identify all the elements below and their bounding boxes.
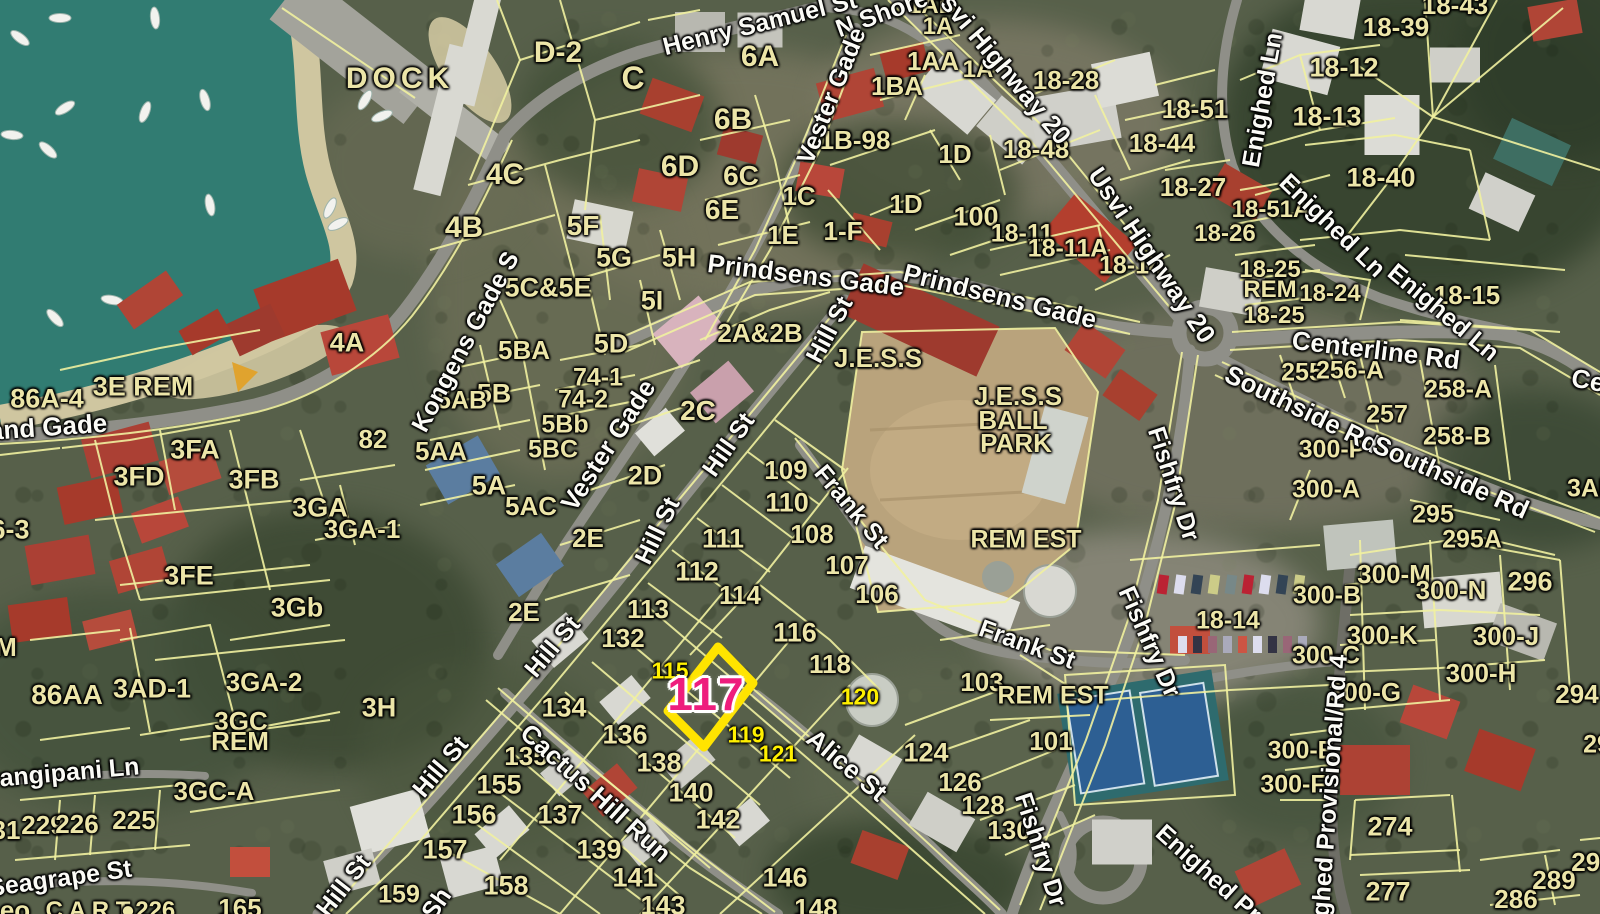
parcel-label: 1BA	[871, 73, 923, 99]
parcel-label: 5G	[596, 245, 632, 272]
parcel-label: 18-43	[1422, 0, 1489, 18]
parcel-label: REM	[1243, 278, 1296, 302]
street-label: Fishfry Dr	[1114, 583, 1185, 701]
parcel-label: 18-51	[1162, 96, 1229, 122]
parcel-label: 3GA-1	[324, 516, 401, 542]
parcel-label: 18-44	[1129, 130, 1196, 156]
parcel-label: 2A&2B	[717, 320, 802, 346]
parcel-label: 18-24	[1299, 282, 1360, 306]
parcel-label: 18-39	[1363, 14, 1430, 40]
parcel-label: 118	[809, 651, 851, 677]
parcel-label: 165	[218, 895, 261, 914]
street-label: Seagrape St	[0, 857, 133, 902]
parcel-label: M	[0, 634, 17, 660]
parcel-label: 5F	[567, 212, 600, 240]
parcel-label: 6B	[714, 105, 752, 135]
parcel-label: 18-13	[1292, 104, 1361, 131]
parcel-label: 5Bb	[541, 413, 588, 438]
parcel-label: 159	[378, 883, 420, 908]
parcel-label: 3FA	[170, 437, 220, 464]
parcel-label: 112	[675, 559, 719, 586]
parcel-label: 5AC	[505, 493, 557, 519]
parcel-label: 18-12	[1309, 55, 1378, 82]
parcel-label: 3AD-1	[113, 676, 191, 703]
map-viewport[interactable]: D-2C6A6B6D6C6E4C4B5F5G5H5C&5E5I1AB1A1AA1…	[0, 0, 1600, 914]
parcel-label: 6A	[741, 42, 779, 72]
parcel-label: 158	[483, 873, 528, 900]
parcel-label: 6-3	[0, 517, 30, 544]
street-label: Frank St	[976, 616, 1079, 674]
parcel-label: 6D	[661, 152, 699, 182]
parcel-label: 225	[112, 807, 155, 833]
parcel-label: 1C	[782, 183, 815, 209]
street-label: Centerline Rd	[1570, 365, 1600, 420]
parcel-label: 114	[719, 582, 761, 608]
parcel-label: REM	[211, 728, 269, 754]
parcel-label: 4C	[486, 160, 524, 190]
parcel-label: 5I	[641, 288, 664, 315]
place-label: DOCK	[346, 64, 454, 94]
selected-parcel-label[interactable]: 117	[667, 671, 744, 717]
parcel-label: 2E	[508, 599, 540, 625]
parcel-label: 155	[476, 772, 521, 799]
parcel-label: 295	[1412, 503, 1454, 528]
street-label: Prindsens Gade	[706, 250, 906, 300]
parcel-label: 226	[55, 811, 98, 837]
parcel-label: 107	[825, 552, 868, 578]
street-label: Hill St	[409, 732, 474, 802]
parcel-label: 1D	[938, 141, 971, 167]
parcel-label: 31	[0, 817, 20, 843]
parcel-label: 5AA	[415, 438, 467, 464]
parcel-label: C	[621, 62, 644, 94]
parcel-label: 286	[1494, 886, 1537, 912]
parcel-label: 141	[612, 865, 657, 892]
parcel-label: 294	[1555, 681, 1598, 707]
parcel-label: 2C	[680, 397, 716, 425]
parcel-label: 116	[773, 620, 817, 647]
place-label: REM EST	[997, 684, 1108, 709]
parcel-label: 258-B	[1423, 425, 1491, 450]
parcel-label: 18-11A	[1028, 237, 1109, 262]
parcel-label: 3Gb	[271, 595, 324, 622]
parcel-label: 300-H	[1446, 660, 1517, 686]
parcel-label: 18-14	[1196, 609, 1260, 634]
parcel-label: 4B	[445, 213, 483, 243]
highlighted-parcel-label: 120	[841, 686, 879, 709]
parcel-label: 5D	[594, 331, 629, 358]
street-label: Prindsens Gade	[901, 259, 1099, 332]
parcel-label: 257	[1366, 403, 1408, 428]
parcel-label: C A R T	[46, 899, 131, 914]
parcel-label: 4A	[330, 330, 365, 357]
parcel-label: 3FE	[164, 563, 214, 590]
parcel-label: 137	[537, 802, 582, 829]
parcel-label: 295A	[1442, 528, 1502, 553]
parcel-label: 3E REM	[93, 374, 194, 401]
parcel-label: 82	[359, 426, 388, 452]
map-labels-layer: D-2C6A6B6D6C6E4C4B5F5G5H5C&5E5I1AB1A1AA1…	[0, 0, 1600, 914]
parcel-label: 86AA	[31, 681, 103, 709]
street-label: Enighed Ln	[1239, 31, 1287, 169]
parcel-label: 5H	[662, 245, 697, 272]
parcel-label: 289	[1532, 867, 1575, 893]
parcel-label: 138	[636, 750, 681, 777]
place-label: PARK	[980, 430, 1052, 456]
parcel-label: 300-N	[1416, 577, 1487, 603]
parcel-label: 1-F	[824, 218, 863, 244]
parcel-label: 5C&5E	[504, 275, 591, 302]
parcel-label: 18-27	[1160, 174, 1227, 200]
parcel-label: ●226	[121, 899, 176, 914]
street-label: Fishfry Dr	[1143, 424, 1203, 544]
parcel-label: 140	[668, 780, 713, 807]
parcel-label: 300-A	[1292, 478, 1360, 503]
parcel-label: 148	[794, 895, 837, 914]
parcel-label: 1E	[767, 222, 799, 248]
street-label: Strand Gade	[0, 410, 108, 447]
parcel-label: 142	[695, 807, 740, 834]
parcel-label: 290	[1571, 849, 1600, 875]
parcel-label: 156	[451, 802, 496, 829]
parcel-label: 3FD	[113, 464, 164, 491]
parcel-label: 296	[1507, 569, 1552, 596]
place-label: J.E.S.S	[834, 345, 922, 371]
parcel-label: 29	[1583, 733, 1600, 758]
parcel-label: 5BC	[528, 438, 578, 463]
parcel-label: 106	[855, 581, 898, 607]
parcel-label: 124	[903, 740, 948, 767]
parcel-label: 5BA	[498, 337, 550, 363]
street-label: Frangipani Ln	[0, 754, 140, 793]
parcel-label: 86A-4	[10, 386, 84, 413]
parcel-label: 2D	[628, 463, 663, 490]
parcel-label: 258-A	[1424, 378, 1492, 403]
street-label: Alice St	[802, 724, 892, 805]
parcel-label: 300-B	[1293, 584, 1361, 609]
parcel-label: 6E	[705, 196, 739, 224]
parcel-label: 113	[627, 596, 669, 622]
parcel-label: 6C	[723, 162, 759, 190]
parcel-label: 3FB	[228, 467, 279, 494]
parcel-label: 157	[422, 837, 467, 864]
parcel-label: 3H	[362, 695, 397, 722]
parcel-label: 300-J	[1473, 623, 1540, 649]
street-label: Hill St	[312, 850, 375, 914]
parcel-label: 74-2	[558, 388, 608, 413]
parcel-label: 139	[576, 837, 621, 864]
parcel-label: 3GC-A	[174, 778, 255, 804]
parcel-label: 277	[1365, 879, 1410, 906]
street-label: Fishfry Dr	[1010, 790, 1070, 910]
parcel-label: 3AB	[1567, 477, 1600, 502]
parcel-label: 110	[765, 490, 809, 517]
parcel-label: 111	[702, 526, 744, 553]
parcel-label: 3GA-2	[226, 669, 303, 695]
parcel-label: 146	[762, 865, 807, 892]
parcel-label: 1D	[889, 191, 922, 217]
parcel-label: 101	[1029, 728, 1072, 754]
parcel-label: 108	[790, 521, 833, 547]
parcel-label: 2E	[572, 525, 604, 551]
parcel-label: 18-40	[1346, 165, 1415, 192]
parcel-label: 134	[541, 695, 586, 722]
place-label: REM EST	[970, 528, 1081, 553]
parcel-label: 143	[640, 893, 685, 914]
parcel-label: 274	[1367, 814, 1412, 841]
parcel-label: 109	[764, 457, 807, 483]
street-label: Enighed Provisio	[1151, 820, 1319, 914]
parcel-label: 5A	[472, 473, 507, 500]
parcel-label: D-2	[534, 38, 582, 68]
street-label: Sh	[418, 884, 457, 914]
parcel-label: 132	[601, 625, 644, 651]
highlighted-parcel-label: 121	[759, 743, 797, 766]
parcel-label: 18-26	[1194, 222, 1255, 246]
parcel-label: 136	[602, 722, 647, 749]
